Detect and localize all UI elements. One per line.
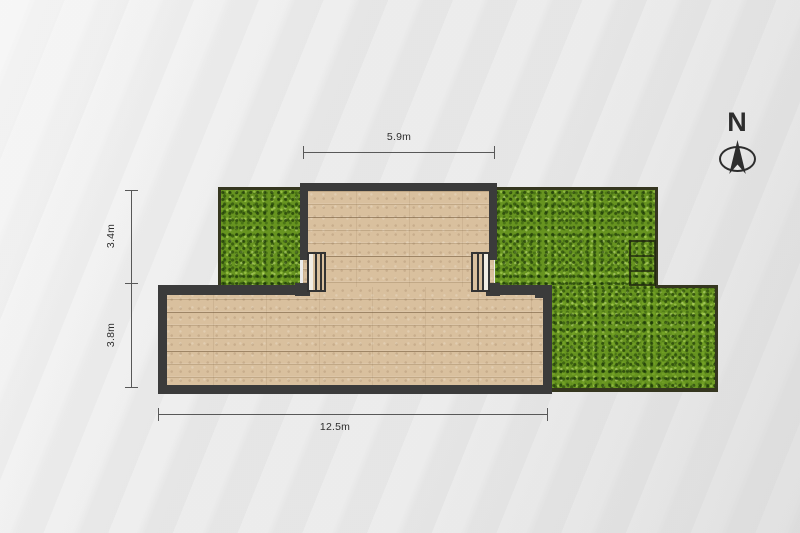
dimension-left-upper-label: 3.4m — [105, 216, 119, 256]
dimension-bottom-tick-right — [547, 408, 548, 421]
dimension-left-line — [131, 190, 132, 387]
dimension-left-tick-top — [125, 190, 138, 191]
garden-left — [218, 187, 300, 290]
dimension-left-tick-mid — [125, 283, 138, 284]
dimension-top-label: 5.9m — [359, 131, 439, 143]
dimension-left-tick-bottom — [125, 387, 138, 388]
stair-strip — [484, 254, 488, 290]
stair-strip — [309, 254, 313, 290]
stair-tread-line — [482, 254, 484, 290]
dimension-left-lower-label: 3.8m — [105, 315, 119, 355]
garden-step-line — [631, 255, 654, 257]
upper-deck — [303, 186, 494, 296]
wall-upper-deck-left — [300, 183, 308, 260]
wall-lower-deck-top-left — [158, 285, 310, 295]
stair-tread-line — [320, 254, 322, 290]
garden-step-line — [631, 270, 654, 272]
stair-tread-line — [315, 254, 317, 290]
garden-right-lower-top-edge — [655, 285, 718, 288]
dimension-bottom-line — [158, 414, 548, 415]
lower-deck — [160, 287, 550, 391]
stairs-left — [307, 252, 326, 292]
garden-right-lower — [552, 285, 718, 392]
wall-upper-deck-top — [300, 183, 497, 191]
garden-steps-outline — [629, 240, 656, 286]
dimension-top-line — [303, 152, 495, 153]
compass-north-label: N — [722, 109, 752, 136]
wall-lower-deck-left — [158, 285, 167, 394]
wall-upper-deck-right — [489, 183, 497, 260]
dimension-bottom-label: 12.5m — [295, 421, 375, 433]
wall-corner-top-right — [535, 285, 552, 298]
dimension-bottom-tick-left — [158, 408, 159, 421]
dimension-top-tick-left — [303, 146, 304, 159]
floorplan-canvas: 5.9m 3.4m 3.8m 12.5m N — [0, 0, 800, 533]
wall-lower-deck-bottom — [158, 385, 552, 394]
wall-lower-deck-right — [543, 285, 552, 394]
stairs-right — [471, 252, 490, 292]
stair-tread-line — [477, 254, 479, 290]
dimension-top-tick-right — [494, 146, 495, 159]
